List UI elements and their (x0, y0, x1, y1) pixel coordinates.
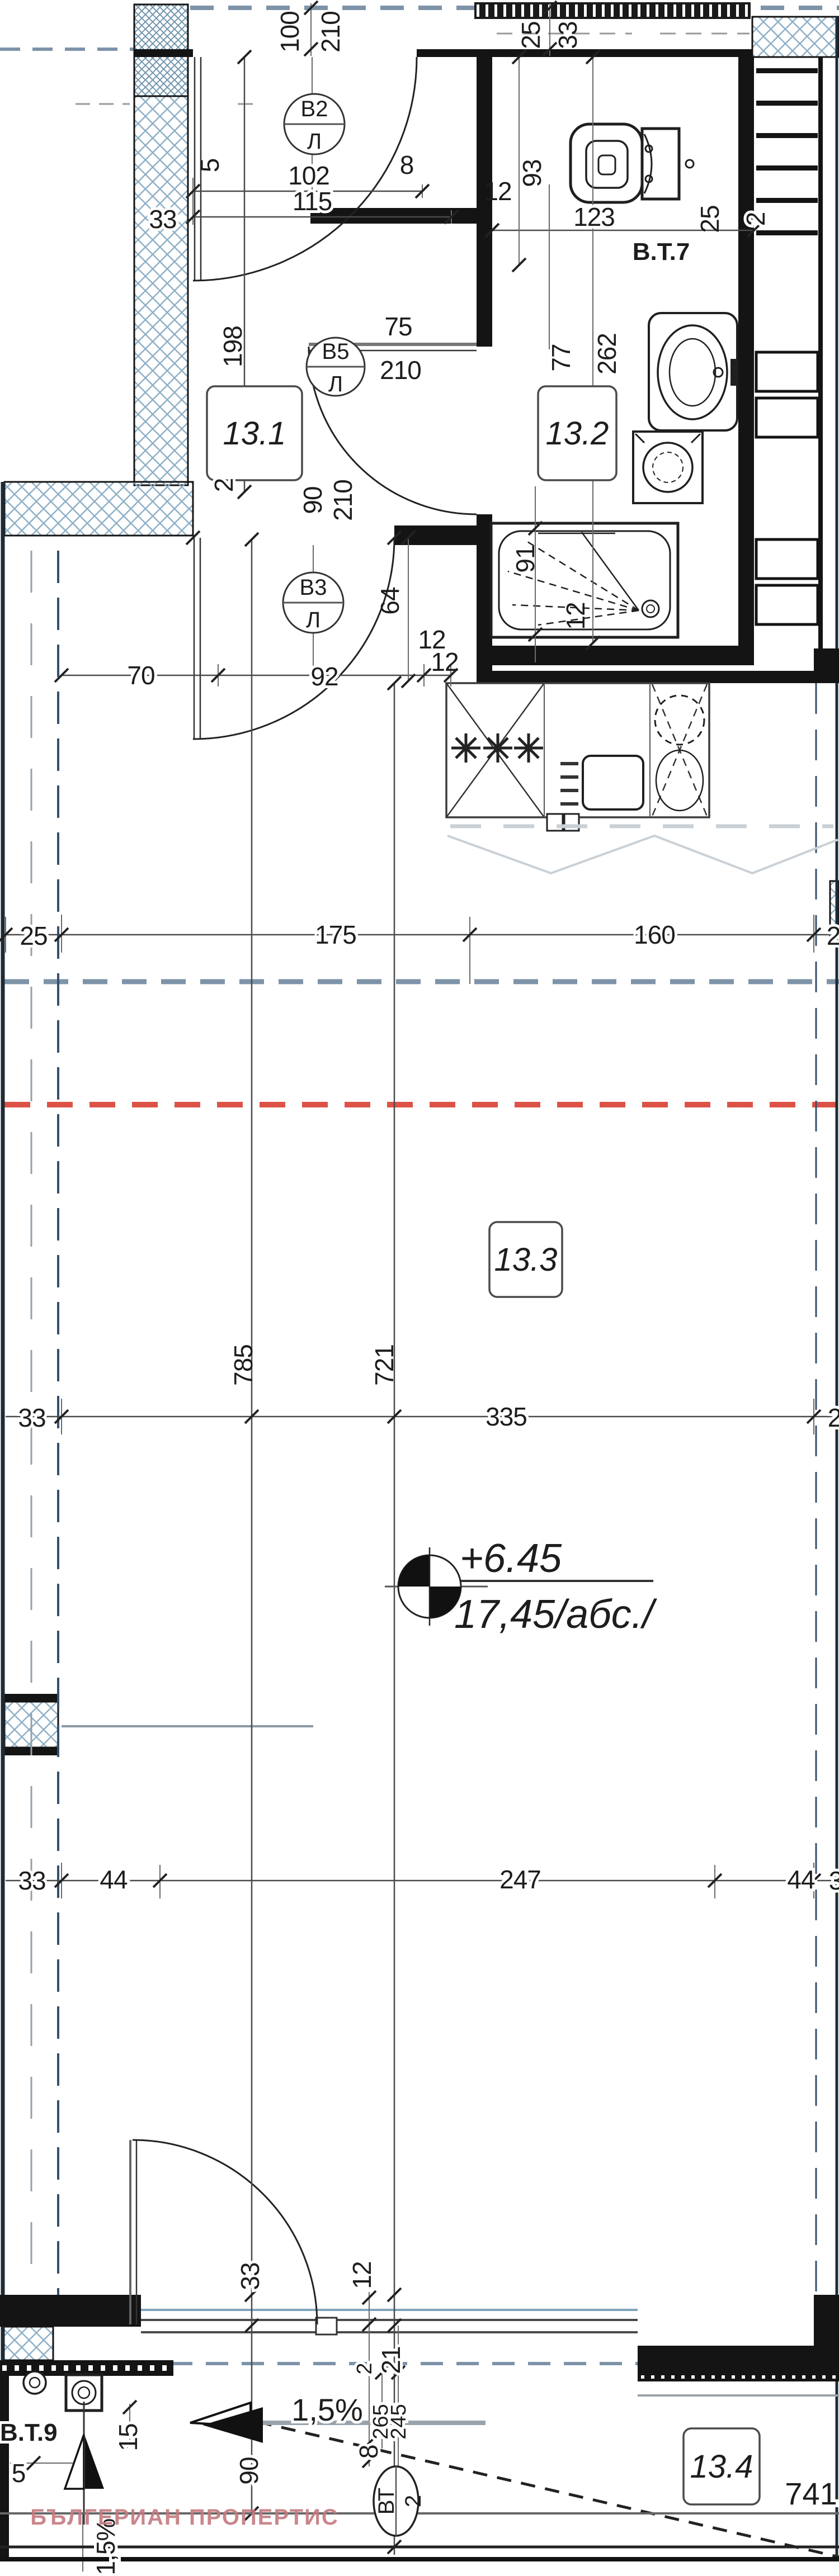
shaft-label-vt9: В.Т.9 (0, 2419, 58, 2446)
dim-2-c: 2 (209, 479, 238, 493)
vent-pipe-code: ВТ (374, 2488, 399, 2515)
vent-code: В2 (301, 97, 328, 121)
markers: В2 Л В5 Л В3 Л 13.1 13.2 13.3 (207, 94, 760, 2536)
dim-262: 262 (592, 333, 621, 375)
dim-90-b: 90 (234, 2457, 263, 2484)
dim-8: 8 (400, 150, 414, 179)
room-number: 13.1 (223, 415, 286, 452)
floor-plan-drawing: В2 Л В5 Л В3 Л 13.1 13.2 13.3 (0, 0, 839, 2576)
washing-machine (633, 432, 703, 503)
dim-2-f: 2 (353, 2362, 376, 2374)
dim-25: 25 (516, 21, 545, 49)
hatched-wall-top-right (752, 17, 839, 57)
dim-160: 160 (634, 920, 675, 949)
room-number: 13.2 (546, 415, 609, 452)
dim-245: 245 (387, 2404, 411, 2439)
dim-210-c: 210 (328, 480, 357, 521)
window-mullion (316, 2318, 337, 2334)
vent-sub: Л (307, 129, 322, 154)
terrace-door (130, 2140, 317, 2324)
dim-2-d: 2 (827, 921, 839, 950)
dim-123: 123 (573, 202, 615, 231)
door-swing-arc (193, 538, 394, 739)
dim-75: 75 (384, 312, 412, 341)
kitchen-counter (446, 683, 838, 873)
dim-12-d: 12 (431, 647, 458, 676)
dim-25-b: 25 (695, 205, 724, 233)
slope-percent: 1,5% (291, 2392, 363, 2427)
dim-12-c: 12 (561, 602, 590, 629)
shaft-label-vt7: В.Т.7 (633, 238, 690, 266)
dim-90: 90 (298, 486, 327, 514)
dim-33-wall: 33 (149, 205, 176, 234)
hall-door-90 (193, 538, 394, 739)
dim-741: 741 (785, 2476, 837, 2511)
dim-2-b: 2 (741, 212, 770, 226)
level-relative: +6.45 (460, 1536, 562, 1581)
dim-15: 15 (114, 2423, 143, 2451)
burner-icon (451, 733, 480, 763)
dim-93: 93 (517, 159, 546, 187)
vent-pipe-marker-vt2: ВТ 2 (374, 2466, 426, 2536)
fridge (652, 684, 707, 816)
watermark: БЪЛГЕРИАН ПРОПЕРТИС (30, 2505, 338, 2530)
upper-cabinet-zigzag (447, 836, 838, 873)
dim-175: 175 (315, 920, 356, 949)
vent-pipe-num: 2 (401, 2495, 426, 2507)
floor-drain (23, 2371, 102, 2411)
room-number: 13.3 (494, 1242, 558, 1278)
room-box-13-1: 13.1 (207, 386, 302, 480)
dim-91: 91 (511, 545, 540, 572)
dim-785: 785 (229, 1344, 258, 1386)
dim-8-b: 8 (354, 2445, 383, 2459)
dim-70: 70 (127, 661, 154, 690)
dim-door-height: 210 (316, 11, 345, 53)
dim-64: 64 (375, 587, 404, 615)
dim-33: 33 (553, 21, 582, 49)
level-absolute: 17,45/абс./ (454, 1592, 658, 1637)
room-number: 13.4 (690, 2449, 753, 2485)
vent-sub: Л (328, 372, 343, 396)
dim-33-d: 33 (235, 2262, 265, 2290)
installation-shaft (756, 68, 818, 624)
vent-marker-b3: В3 Л (283, 572, 343, 633)
dim-92: 92 (310, 662, 338, 691)
vent-marker-b5: В5 Л (307, 338, 365, 396)
toilet (571, 124, 694, 202)
dim-2-e: 2 (828, 1403, 839, 1432)
dim-12: 12 (484, 177, 511, 206)
burner-icon (483, 733, 512, 763)
hatched-wall-band (4, 482, 193, 536)
dim-198: 198 (218, 326, 247, 367)
vent-code: В3 (300, 575, 327, 600)
room-box-13-4: 13.4 (684, 2428, 760, 2504)
dim-102: 102 (288, 161, 329, 190)
drain-slope-arrow-outline (65, 2435, 84, 2489)
bathroom-sink (649, 313, 738, 430)
dim-12-e: 12 (347, 2261, 376, 2289)
dim-335: 335 (486, 1402, 527, 1431)
dimension-labels: 100 210 25 33 33 5 8 102 115 12 93 123 2… (0, 11, 839, 2575)
dim-3: 3 (829, 1866, 839, 1895)
dim-door-width: 100 (275, 11, 304, 53)
hatched-shaft-vt9 (2, 2327, 53, 2360)
vent-marker-b2: В2 Л (284, 94, 345, 154)
vent-code: В5 (322, 339, 350, 364)
dim-210-b: 210 (380, 356, 421, 385)
room-box-13-3: 13.3 (489, 1222, 562, 1297)
dim-33-c: 33 (18, 1866, 45, 1895)
dim-44-b: 44 (787, 1865, 815, 1894)
dim-44: 44 (100, 1865, 128, 1894)
dim-5-b: 5 (12, 2459, 26, 2488)
door-swing-arc (133, 2140, 317, 2324)
vent-sub: Л (306, 608, 320, 632)
hatched-wall-left-column (134, 96, 188, 485)
envelope-lines (3, 17, 837, 2560)
dim-115: 115 (293, 187, 332, 216)
floor-plan-sheet: В2 Л В5 Л В3 Л 13.1 13.2 13.3 (0, 0, 839, 2576)
dim-33-b: 33 (18, 1403, 45, 1432)
walls (0, 49, 839, 2558)
dim-77: 77 (546, 344, 576, 371)
burner-icon (514, 733, 543, 763)
dim-247: 247 (499, 1865, 541, 1894)
dim-25-c: 25 (20, 921, 47, 950)
drain-slope-arrow (85, 2436, 104, 2489)
room-box-13-2: 13.2 (538, 386, 616, 480)
dim-21: 21 (376, 2346, 406, 2374)
dim-721: 721 (370, 1344, 399, 1386)
dim-5: 5 (195, 159, 224, 173)
kitchen-sink (583, 756, 643, 809)
